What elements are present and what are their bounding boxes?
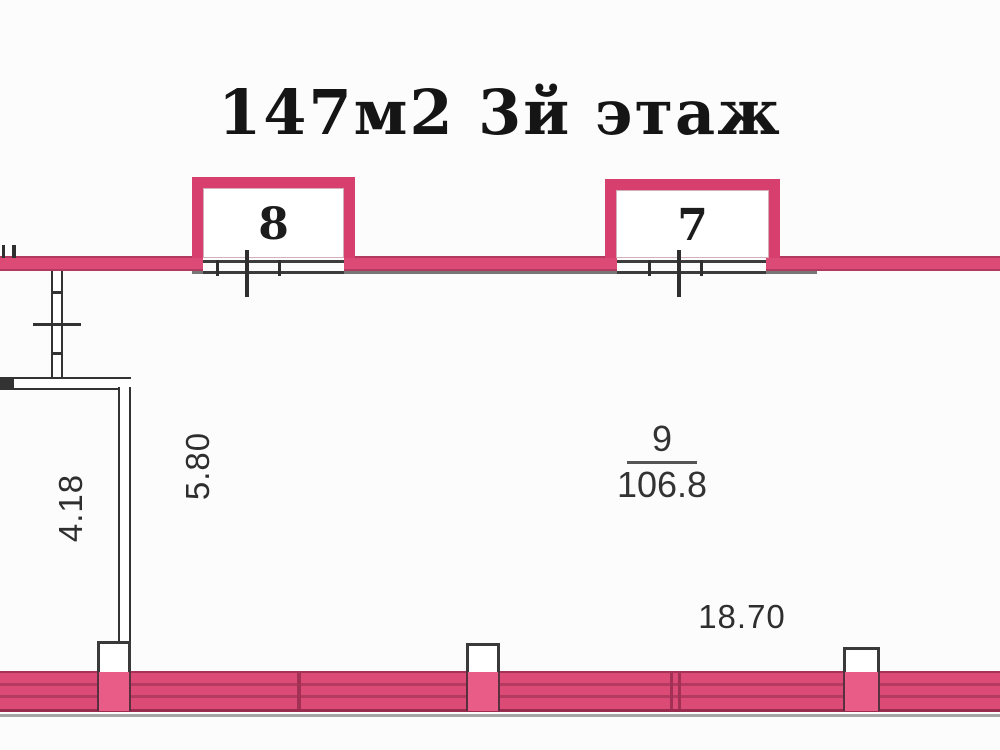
left-edge-tick: [2, 245, 5, 258]
wall-tick: [51, 291, 63, 294]
window-center-tick: [677, 250, 681, 297]
column-left: [97, 641, 131, 672]
window-small-tick: [648, 260, 651, 276]
wall-stub: [0, 377, 14, 390]
dimension-18-70: 18.70: [682, 598, 802, 636]
balcony-8: 8: [192, 177, 355, 258]
column-middle-core: [466, 672, 500, 711]
wall-tick: [51, 352, 63, 355]
window-line: [617, 260, 766, 263]
room-9-label: 9 106.8: [610, 420, 714, 504]
balcony-7-number: 7: [677, 200, 708, 251]
room-9-number: 9: [610, 420, 714, 458]
window-balcony-7: [617, 258, 766, 298]
balcony-8-number: 8: [258, 199, 289, 250]
dimension-5-80: 5.80: [179, 406, 215, 526]
balcony-7: 7: [605, 179, 780, 258]
window-line: [617, 271, 766, 274]
wall-joint: [670, 673, 673, 709]
window-line: [203, 260, 344, 263]
column-right-core: [843, 672, 880, 711]
partition-wall-vertical-upper: [51, 271, 63, 381]
window-center-tick: [245, 250, 249, 297]
plan-title: 147м2 3й этаж: [218, 76, 782, 149]
top-wall-segment-right: [766, 256, 1000, 271]
floor-line: [0, 714, 1000, 717]
top-wall-segment-middle: [344, 256, 617, 271]
window-balcony-8: [203, 258, 344, 298]
window-line: [203, 271, 344, 274]
partition-wall-horizontal: [0, 377, 131, 390]
dimension-4-18: 4.18: [52, 448, 88, 568]
column-left-core: [97, 672, 131, 711]
top-wall-segment-left: [0, 256, 203, 271]
wall-joint: [678, 673, 681, 709]
partition-wall-vertical-lower: [118, 387, 131, 644]
wall-joint: [297, 673, 301, 709]
window-small-tick: [278, 260, 281, 276]
window-small-tick: [700, 260, 703, 276]
wall-cross-tick: [33, 323, 81, 326]
column-right: [843, 647, 880, 672]
room-9-area: 106.8: [610, 466, 714, 504]
floor-plan: 147м2 3й этаж 8 7 9 106.8: [0, 0, 1000, 750]
column-middle: [466, 643, 500, 672]
window-small-tick: [216, 260, 219, 276]
left-edge-tick: [12, 245, 16, 258]
